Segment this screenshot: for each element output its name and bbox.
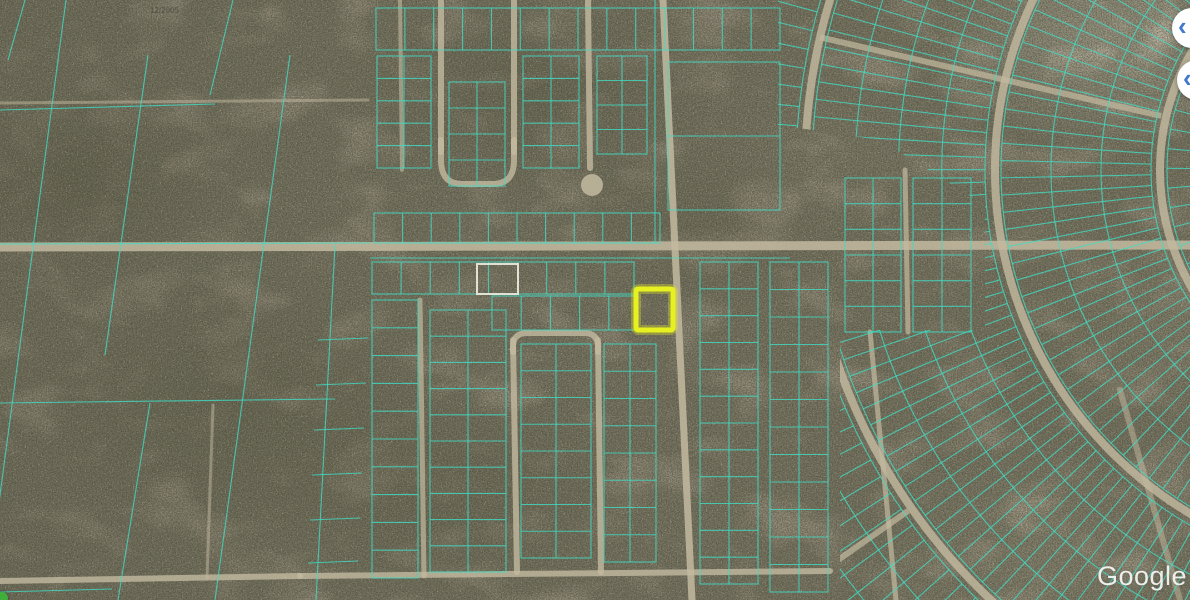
chevron-left-icon: ‹	[1178, 13, 1187, 39]
selected-parcel-highlight[interactable]	[636, 289, 673, 330]
google-earth-watermark: Google Ea	[1097, 561, 1190, 592]
imagery-date-label: 12/2005	[150, 6, 179, 15]
map-viewport[interactable]: 12/2005 ‹ ‹ Google Ea	[0, 0, 1190, 600]
chevron-left-icon: ‹	[1183, 65, 1190, 91]
parcel-grid-overlay	[0, 0, 1190, 600]
white-outlined-parcel	[477, 264, 518, 294]
